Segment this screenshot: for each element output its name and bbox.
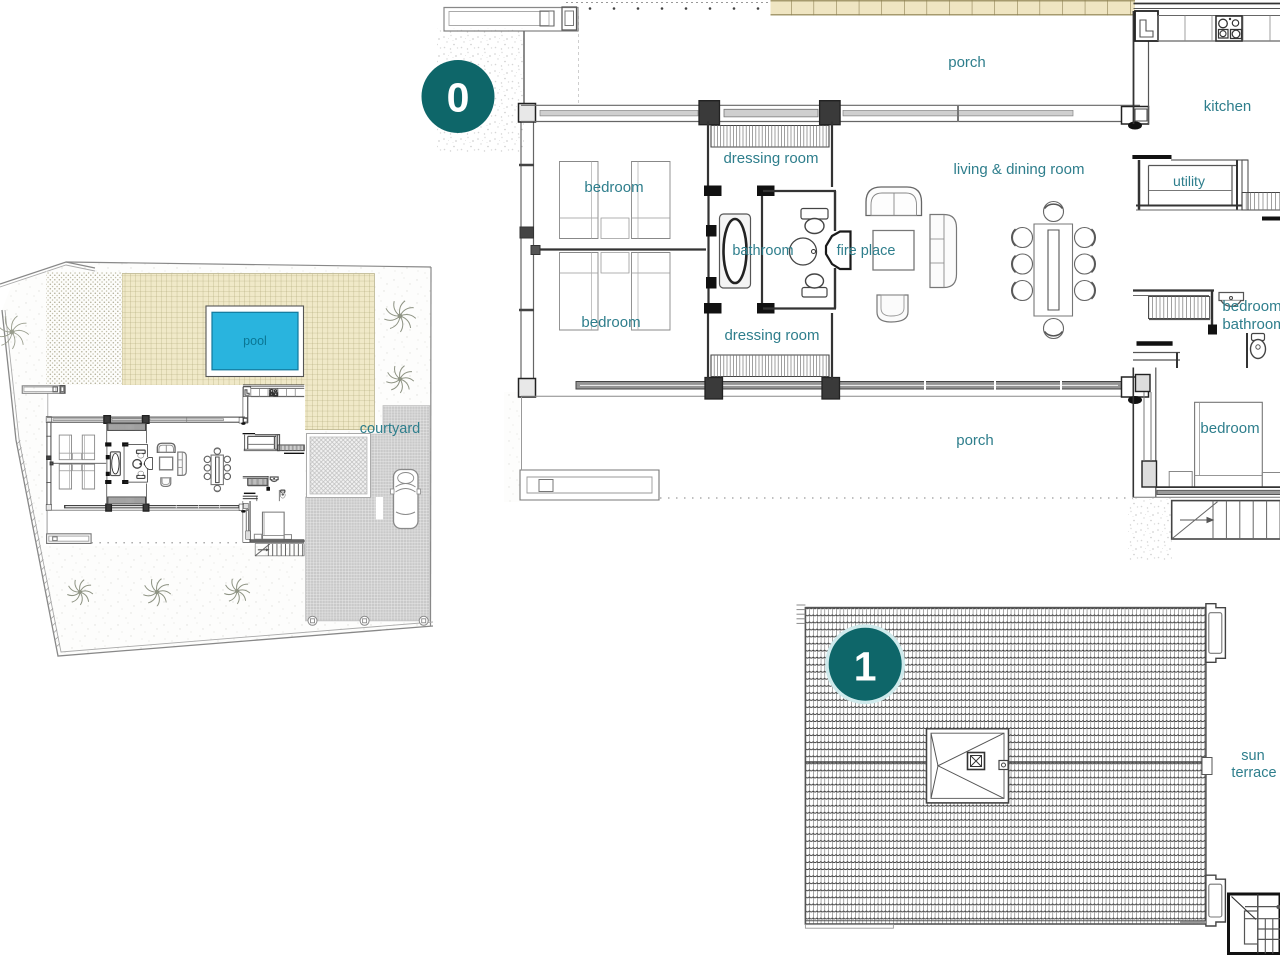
svg-text:bedroom: bedroom bbox=[1222, 298, 1280, 315]
svg-text:1: 1 bbox=[854, 644, 877, 690]
svg-text:dressing room: dressing room bbox=[723, 150, 818, 167]
svg-text:bedroom: bedroom bbox=[581, 314, 640, 331]
svg-text:fire place: fire place bbox=[837, 243, 896, 259]
svg-text:bedroom: bedroom bbox=[584, 179, 643, 196]
svg-text:living & dining room: living & dining room bbox=[954, 161, 1085, 178]
svg-text:dressing room: dressing room bbox=[724, 327, 819, 344]
svg-text:sun: sun bbox=[1241, 748, 1264, 764]
svg-text:utility: utility bbox=[1173, 173, 1205, 189]
svg-text:bathroom: bathroom bbox=[1222, 316, 1280, 333]
svg-text:courtyard: courtyard bbox=[360, 421, 420, 437]
svg-text:pool: pool bbox=[243, 334, 267, 348]
svg-text:porch: porch bbox=[948, 54, 986, 71]
svg-text:kitchen: kitchen bbox=[1204, 98, 1252, 115]
svg-text:0: 0 bbox=[447, 75, 470, 121]
svg-text:terrace: terrace bbox=[1231, 765, 1276, 781]
svg-text:porch: porch bbox=[956, 432, 994, 449]
svg-text:bedroom: bedroom bbox=[1200, 420, 1259, 437]
svg-text:bathroom: bathroom bbox=[732, 243, 793, 259]
